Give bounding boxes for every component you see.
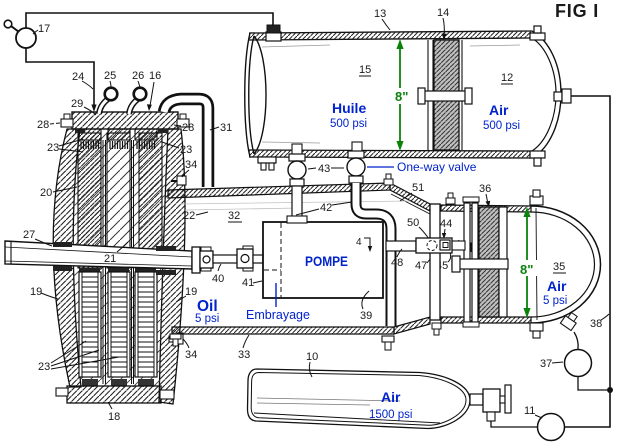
svg-text:11: 11 xyxy=(524,405,535,417)
svg-text:Air: Air xyxy=(381,389,401,405)
svg-text:32: 32 xyxy=(228,210,240,222)
svg-text:38: 38 xyxy=(590,318,602,330)
svg-text:4: 4 xyxy=(356,237,362,248)
svg-text:500 psi: 500 psi xyxy=(483,120,520,132)
svg-text:8": 8" xyxy=(395,89,408,104)
svg-text:23: 23 xyxy=(180,144,192,156)
svg-text:28: 28 xyxy=(37,119,49,131)
svg-text:10: 10 xyxy=(306,351,318,363)
svg-text:50: 50 xyxy=(407,217,419,229)
svg-text:44: 44 xyxy=(440,218,452,230)
svg-text:22: 22 xyxy=(183,210,195,222)
svg-text:41: 41 xyxy=(242,277,254,289)
svg-text:40: 40 xyxy=(212,273,224,285)
svg-text:36: 36 xyxy=(479,183,491,195)
svg-text:1500 psi: 1500 psi xyxy=(369,409,412,421)
svg-text:42: 42 xyxy=(320,202,332,214)
svg-text:35: 35 xyxy=(553,261,565,273)
svg-text:34: 34 xyxy=(185,159,197,171)
svg-text:27: 27 xyxy=(23,229,35,241)
svg-text:31: 31 xyxy=(220,122,232,134)
svg-text:FIG I: FIG I xyxy=(555,1,599,21)
svg-text:21: 21 xyxy=(104,253,116,265)
svg-text:29: 29 xyxy=(71,98,83,110)
svg-text:12: 12 xyxy=(501,72,513,84)
svg-text:Air: Air xyxy=(547,278,567,294)
svg-text:33: 33 xyxy=(238,349,250,361)
svg-text:Air: Air xyxy=(489,102,509,118)
svg-text:25: 25 xyxy=(104,70,116,82)
svg-text:Embrayage: Embrayage xyxy=(246,308,310,322)
svg-text:One-way valve: One-way valve xyxy=(397,160,477,174)
svg-text:34: 34 xyxy=(185,349,197,361)
svg-text:43: 43 xyxy=(318,163,330,175)
svg-text:5 psi: 5 psi xyxy=(195,313,219,325)
svg-text:Huile: Huile xyxy=(332,100,366,116)
svg-text:19: 19 xyxy=(30,286,42,298)
svg-text:19: 19 xyxy=(185,286,197,298)
svg-text:POMPE: POMPE xyxy=(305,254,348,269)
svg-text:39: 39 xyxy=(360,310,372,322)
svg-text:26: 26 xyxy=(132,70,144,82)
svg-text:17: 17 xyxy=(38,23,50,35)
svg-text:500 psi: 500 psi xyxy=(330,118,367,130)
svg-text:51: 51 xyxy=(412,182,424,194)
svg-text:23: 23 xyxy=(47,142,59,154)
svg-text:23: 23 xyxy=(38,361,50,373)
svg-text:48: 48 xyxy=(391,257,403,269)
svg-text:18: 18 xyxy=(108,411,120,423)
svg-text:47: 47 xyxy=(415,260,427,272)
svg-text:37: 37 xyxy=(540,358,552,370)
svg-text:20: 20 xyxy=(40,187,52,199)
svg-text:16: 16 xyxy=(149,70,161,82)
svg-text:13: 13 xyxy=(374,8,386,20)
svg-text:8": 8" xyxy=(520,262,533,277)
svg-text:14: 14 xyxy=(437,7,449,19)
svg-text:28: 28 xyxy=(182,122,194,134)
svg-text:5 psi: 5 psi xyxy=(543,295,567,307)
svg-text:15: 15 xyxy=(359,64,371,76)
